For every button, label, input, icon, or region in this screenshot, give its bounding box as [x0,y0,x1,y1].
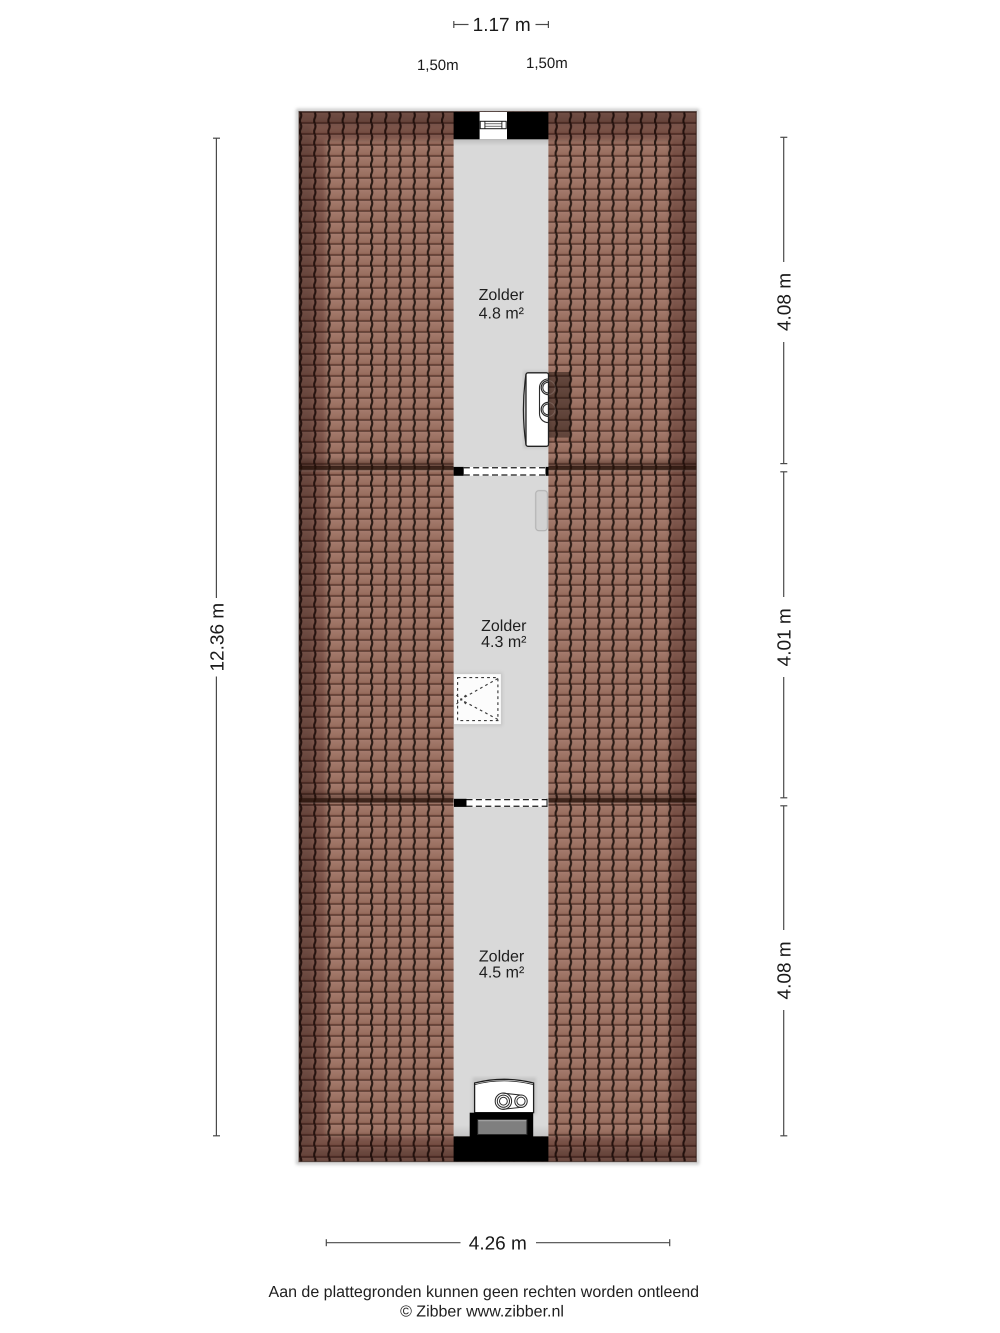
svg-text:12.36 m: 12.36 m [208,603,229,672]
svg-text:4.5 m²: 4.5 m² [479,964,525,981]
svg-text:1,50m: 1,50m [526,55,568,72]
svg-text:4.26 m: 4.26 m [469,1234,527,1255]
svg-text:Zolder: Zolder [481,618,527,635]
svg-text:Aan de plattegronden kunnen ge: Aan de plattegronden kunnen geen rechten… [269,1284,700,1301]
svg-text:Zolder: Zolder [479,948,525,965]
svg-text:1.17 m: 1.17 m [473,15,531,36]
svg-text:4.8 m²: 4.8 m² [479,305,525,322]
svg-text:4.08 m: 4.08 m [775,273,796,331]
svg-text:© Zibber www.zibber.nl: © Zibber www.zibber.nl [400,1304,564,1321]
svg-text:Zolder: Zolder [479,287,525,304]
svg-text:4.3 m²: 4.3 m² [481,634,527,651]
svg-text:4.01 m: 4.01 m [775,608,796,666]
svg-text:4.08 m: 4.08 m [775,941,796,999]
svg-text:1,50m: 1,50m [417,57,459,74]
